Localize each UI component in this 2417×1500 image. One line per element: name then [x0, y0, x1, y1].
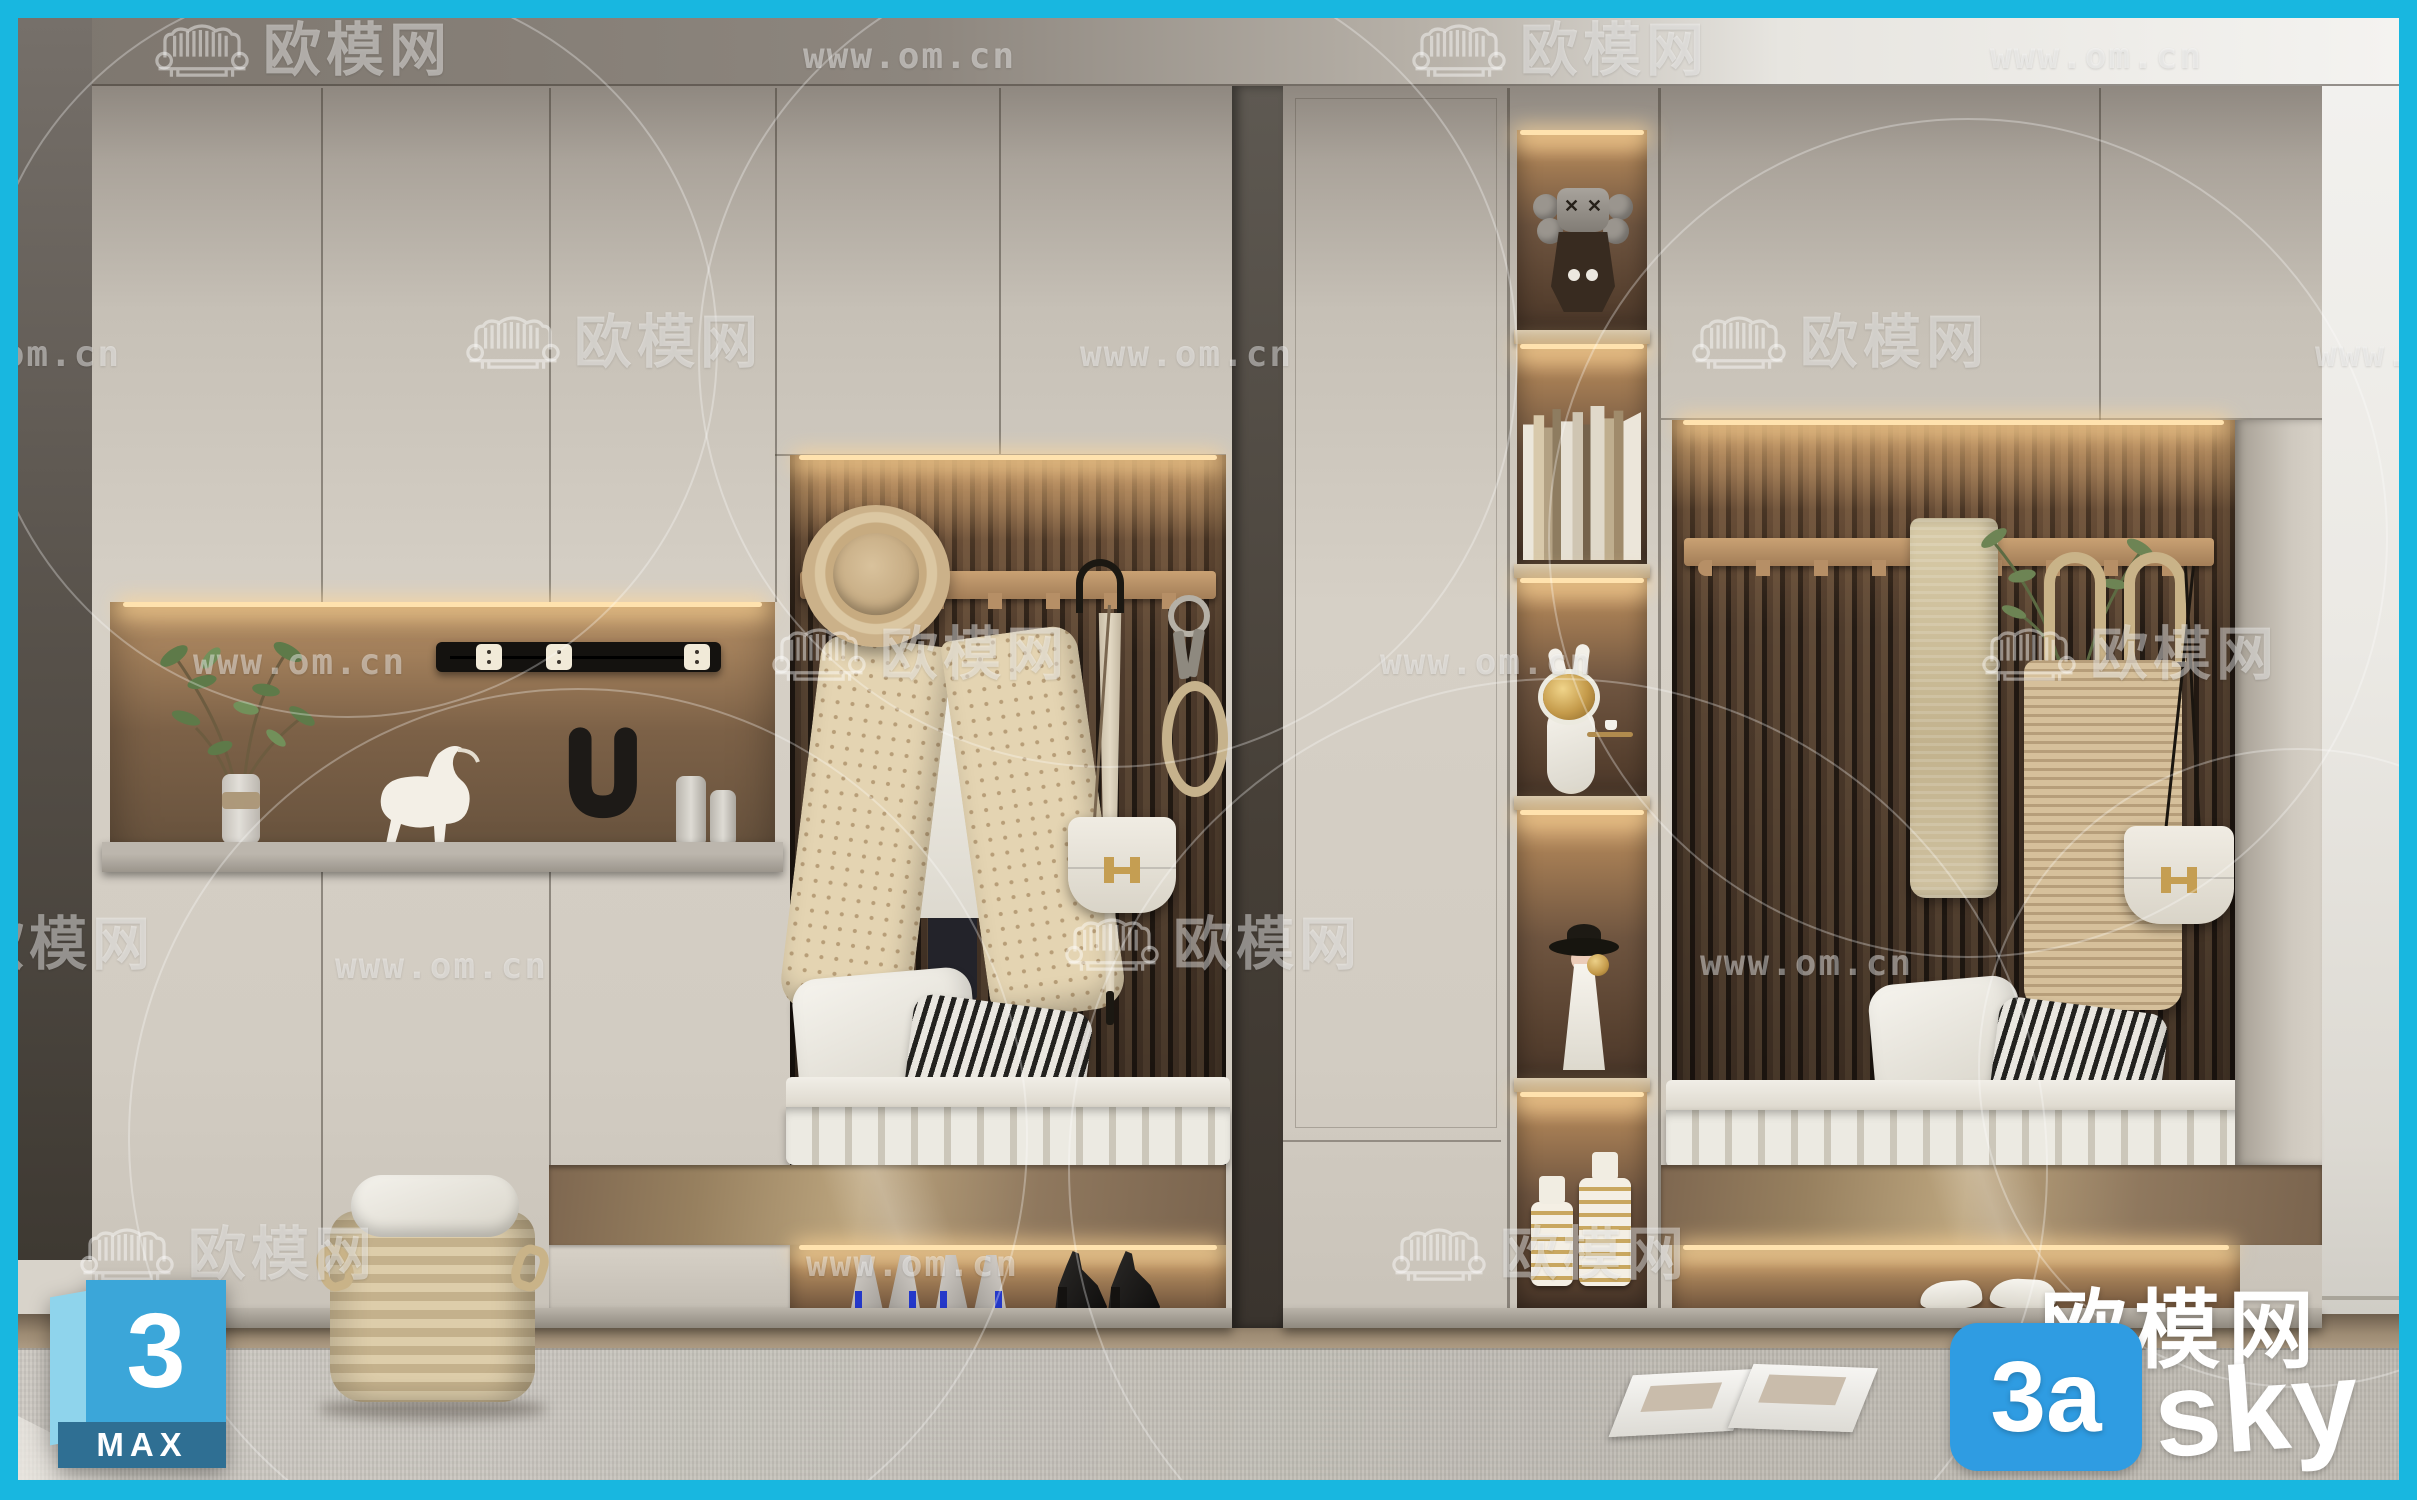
door-seam [999, 88, 1001, 454]
tote-handle [2044, 552, 2106, 662]
girl-figurine [1541, 928, 1625, 1070]
striped-vase [1579, 1178, 1631, 1286]
magazine-photo [1758, 1375, 1846, 1406]
left-wall [18, 18, 92, 1260]
magazine-photo [1640, 1382, 1722, 1412]
straw-hat [802, 505, 950, 647]
tote-handle [2124, 552, 2186, 662]
cushion-tufted-front [786, 1107, 1230, 1165]
shoulder-bag [2124, 826, 2234, 924]
tall-door [1295, 98, 1497, 1128]
tray [1587, 732, 1633, 737]
umbrella [1076, 555, 1148, 1065]
open-magazine [1622, 1362, 1872, 1442]
book-row [1523, 406, 1641, 560]
display-niche [110, 602, 775, 872]
bench-cushion [786, 1077, 1230, 1165]
gold-bubble [1587, 954, 1609, 976]
cushion-tufted-front [1666, 1110, 2316, 1168]
bag-strap [2184, 566, 2201, 838]
bench-cushion [1666, 1080, 2316, 1168]
figure-body [1551, 232, 1615, 312]
figure-puff [1533, 194, 1559, 220]
coat-niche-right [1672, 420, 2235, 1165]
goat-sculpture [360, 736, 490, 846]
folded-blanket [351, 1175, 519, 1237]
led-strip [1520, 578, 1645, 583]
drawer-front [549, 1245, 790, 1308]
magazine-right-page [1728, 1364, 1878, 1432]
glass-vase [222, 774, 260, 844]
3dsmax-badge: 3 MAX [50, 1280, 236, 1470]
hallway-scene: 欧模网 www.om.cn 欧模网 www.om.cn www.om.cn 欧模… [18, 18, 2399, 1480]
niche-countertop [102, 842, 783, 872]
hat-dome [833, 533, 919, 615]
shelf [1514, 330, 1650, 344]
striped-vase [1531, 1202, 1573, 1286]
angled-side-panel [2235, 420, 2322, 1165]
badge-face: 3 [86, 1280, 226, 1422]
led-strip [1520, 810, 1645, 815]
basket-body [330, 1211, 535, 1402]
door-seam [549, 88, 551, 602]
outlet-socket [476, 644, 502, 670]
figurine-hat-brim [1549, 938, 1619, 956]
led-strip [799, 455, 1218, 460]
tiny-cup [1605, 720, 1617, 730]
vase [710, 790, 736, 844]
rabbit-astronaut-figurine [1535, 654, 1635, 794]
right-wall [2322, 86, 2399, 1328]
cushion-top [1666, 1080, 2316, 1110]
display-cubby [1517, 810, 1647, 1078]
shelf [1514, 1078, 1650, 1092]
cardigan-left-panel [778, 633, 953, 1023]
led-strip [1683, 420, 2224, 425]
umbrella-handle [1076, 559, 1124, 613]
rope-loop [1162, 681, 1228, 797]
led-strip [1520, 344, 1645, 349]
display-cubby [1517, 578, 1647, 796]
door-seam [775, 88, 777, 602]
door-seam [1283, 1140, 1501, 1142]
drawer-wood-front-right [1661, 1165, 2322, 1245]
shelf [1514, 564, 1650, 578]
power-strip [436, 642, 721, 672]
display-cubby [1517, 344, 1647, 564]
white-loafer [1919, 1279, 1983, 1311]
ceiling [18, 18, 2399, 86]
figure-head [1557, 188, 1609, 232]
figure-puff [1607, 194, 1633, 220]
badge-label: MAX [96, 1426, 187, 1464]
display-cubby [1517, 130, 1647, 330]
shelf [1514, 796, 1650, 810]
column-seam [1507, 88, 1510, 1328]
door-seam [2099, 88, 2101, 420]
h-buckle [2161, 867, 2197, 893]
rope-basket [330, 1175, 535, 1420]
display-cubby [1517, 1092, 1647, 1308]
kaws-figure [1545, 188, 1621, 316]
gold-helmet [1543, 674, 1595, 720]
framed-render: 欧模网 www.om.cn 欧模网 www.om.cn www.om.cn 欧模… [0, 0, 2417, 1500]
umbrella-tip [1106, 991, 1114, 1025]
led-strip [799, 1245, 1218, 1250]
led-strip [1520, 130, 1645, 135]
coat-niche-left [790, 455, 1226, 1165]
badge-number: 3 [127, 1291, 186, 1412]
cushion-top [786, 1077, 1230, 1107]
keys-and-rope [1150, 595, 1234, 805]
door-seam [321, 872, 323, 1245]
wall-gap [1232, 86, 1283, 1328]
logo-3a-text: 3a [1990, 1340, 2101, 1455]
h-buckle [1104, 857, 1140, 883]
door-seam [549, 872, 551, 1165]
plinth [92, 1308, 1232, 1328]
baseboard [2322, 1296, 2399, 1300]
abstract-sculpture [554, 724, 650, 846]
figurine-dress [1549, 964, 1619, 1070]
led-strip [1683, 1245, 2228, 1250]
shoulder-bag [1068, 817, 1176, 913]
led-strip [1520, 1092, 1645, 1097]
outlet-socket [684, 644, 710, 670]
vase [676, 776, 706, 844]
door-seam [321, 88, 323, 602]
logo-3a-mark: 3a [1950, 1323, 2142, 1471]
column-seam [1658, 88, 1661, 1328]
outlet-socket [546, 644, 572, 670]
drawer-wood-front-left [549, 1165, 1226, 1245]
logo-sky-word: sky [2149, 1333, 2364, 1480]
badge-band: MAX [58, 1422, 226, 1468]
